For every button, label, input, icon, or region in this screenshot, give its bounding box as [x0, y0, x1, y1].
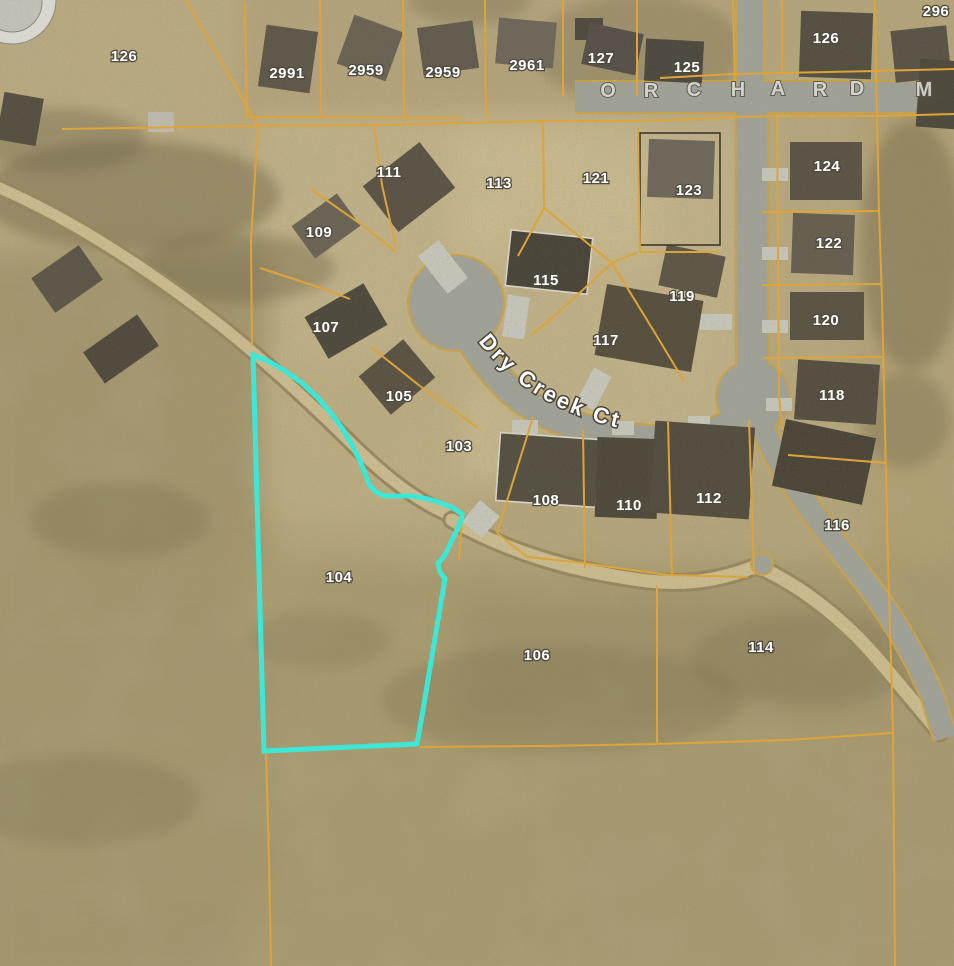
parcel-label-2959: 2959 [425, 64, 460, 81]
parcel-label-113: 113 [486, 175, 512, 192]
parcel-boundary [485, 0, 486, 119]
street-letter-R: R [644, 80, 659, 102]
map-canvas[interactable]: Dry Creek Ct 126299129592959296112712512… [0, 0, 954, 966]
parcel-label-127: 127 [588, 50, 615, 67]
street-letter-D: D [850, 78, 864, 100]
parcel-label-126: 126 [813, 30, 840, 47]
parcel-label-117: 117 [593, 332, 619, 349]
parcel-label-116: 116 [824, 517, 850, 534]
parcel-label-112: 112 [696, 490, 722, 507]
parcel-label-2959: 2959 [348, 62, 383, 79]
terrain-speckle [0, 0, 954, 966]
parcel-boundary [403, 0, 404, 118]
parcel-boundary [320, 0, 321, 117]
parcel-label-114: 114 [748, 639, 774, 656]
parcel-label-125: 125 [674, 59, 701, 76]
street-letter-R: R [813, 79, 828, 101]
street-letter-M: M [916, 79, 933, 101]
street-letter-O: O [600, 80, 616, 102]
parcel-label-106: 106 [524, 647, 551, 664]
parcel-label-2991: 2991 [269, 65, 304, 82]
parcel-label-126: 126 [111, 48, 138, 65]
parcel-label-110: 110 [616, 497, 642, 514]
parcel-label-123: 123 [676, 182, 703, 199]
parcel-label-111: 111 [377, 164, 402, 181]
parcel-label-124: 124 [814, 158, 841, 175]
parcel-map[interactable]: Dry Creek Ct 126299129592959296112712512… [0, 0, 954, 966]
parcel-label-109: 109 [306, 224, 333, 241]
parcel-label-122: 122 [816, 235, 843, 252]
parcel-label-105: 105 [386, 388, 413, 405]
parcel-label-121: 121 [583, 170, 610, 187]
parcel-label-118: 118 [819, 387, 845, 404]
parcel-label-296: 296 [923, 3, 950, 20]
parcel-label-108: 108 [533, 492, 560, 509]
street-letter-A: A [771, 78, 785, 100]
parcel-label-2961: 2961 [509, 57, 544, 74]
parcel-label-115: 115 [533, 272, 559, 289]
parcel-boundary [764, 357, 884, 358]
parcel-boundary [762, 211, 880, 212]
parcel-label-120: 120 [813, 312, 840, 329]
parcel-label-103: 103 [446, 438, 473, 455]
parcel-label-107: 107 [313, 319, 340, 336]
parcel-label-119: 119 [669, 288, 695, 305]
parcel-boundary [245, 117, 462, 118]
street-letter-C: C [687, 79, 701, 101]
street-letter-H: H [731, 79, 745, 101]
parcel-label-104: 104 [326, 569, 353, 586]
parcel-boundary [762, 284, 882, 285]
